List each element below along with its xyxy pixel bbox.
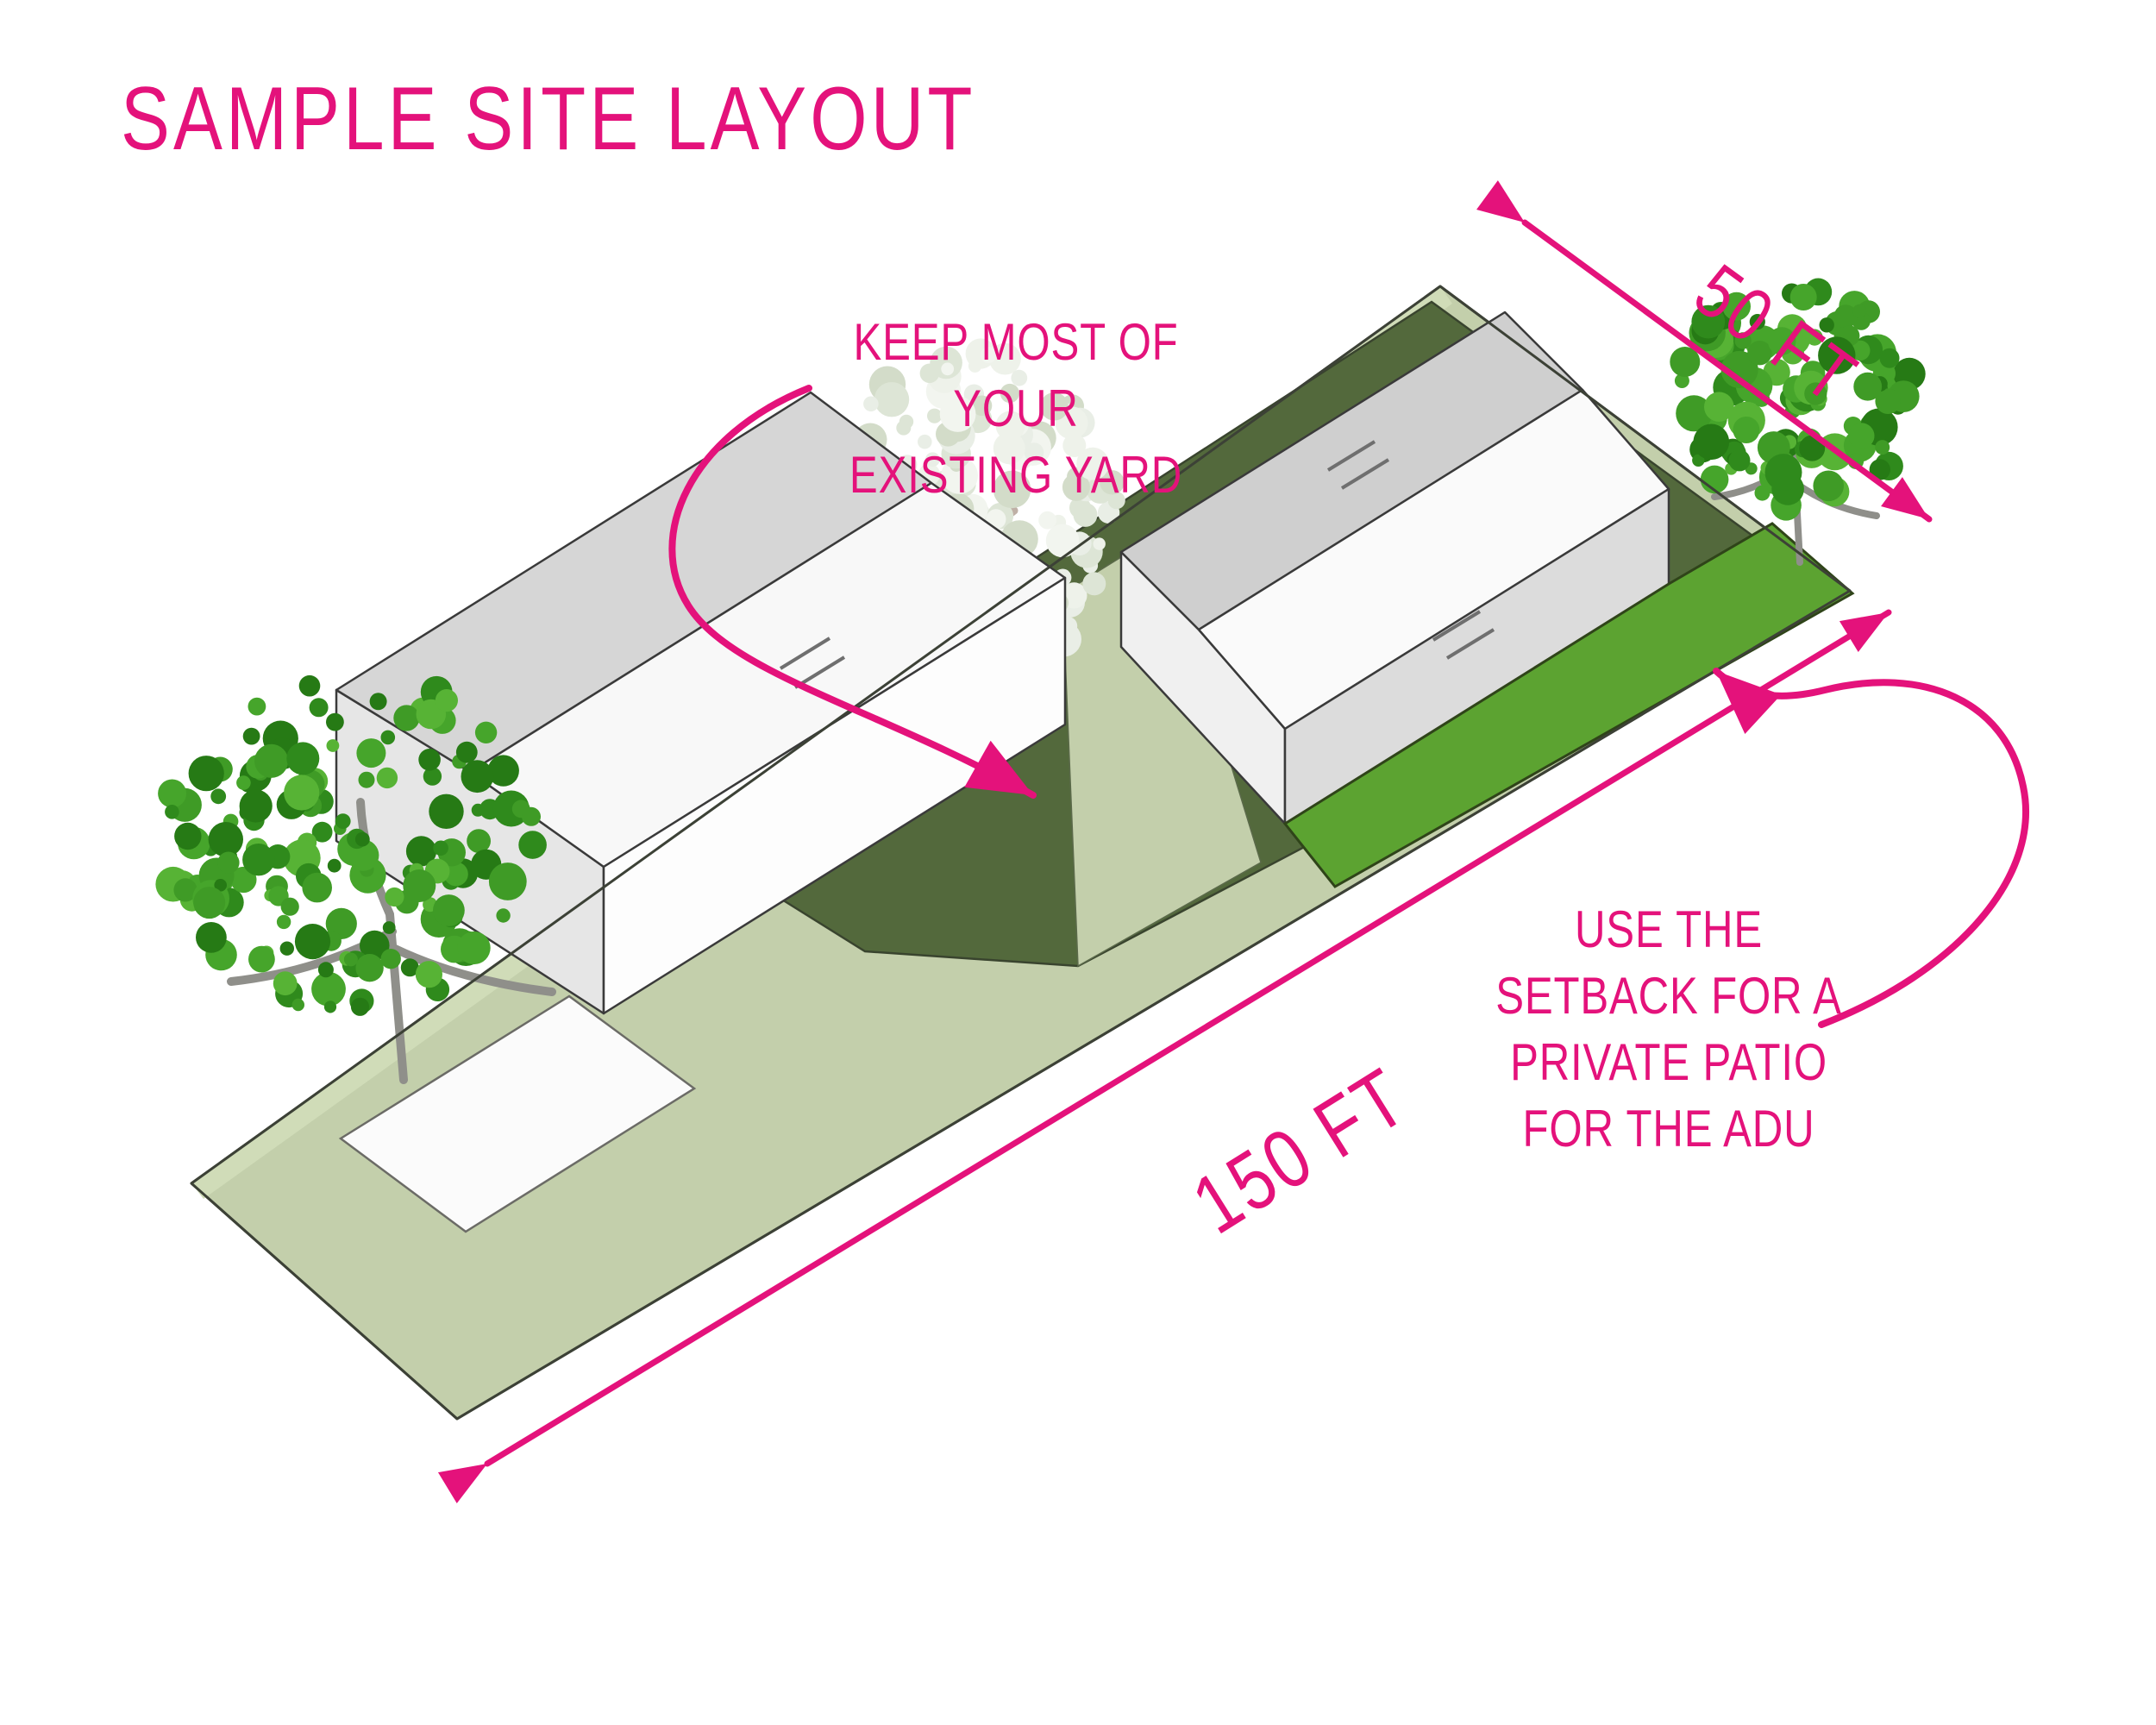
annotation-line: PRIVATE PATIO [1492,1029,1846,1095]
lot-width-dimension-label: 50 FT [1680,248,1873,421]
lot-length-dimension-label: 150 FT [1177,1050,1423,1251]
annotation-line: EXISTING YARD [804,442,1228,508]
annotation-setback-patio: USE THE SETBACK FOR A PRIVATE PATIO FOR … [1492,896,1846,1162]
annotation-line: KEEP MOST OF YOUR [804,309,1228,442]
sample-site-layout-page: 50 FT 150 FT SAMPLE SITE LAYOUT KEEP MOS… [0,0,2156,1725]
site-illustration: 50 FT 150 FT [0,0,2156,1725]
page-title: SAMPLE SITE LAYOUT [121,72,976,166]
annotation-line: SETBACK FOR A [1492,963,1846,1029]
annotation-keep-yard: KEEP MOST OF YOUR EXISTING YARD [804,309,1228,508]
annotation-line: USE THE [1492,896,1846,963]
annotation-line: FOR THE ADU [1492,1095,1846,1162]
